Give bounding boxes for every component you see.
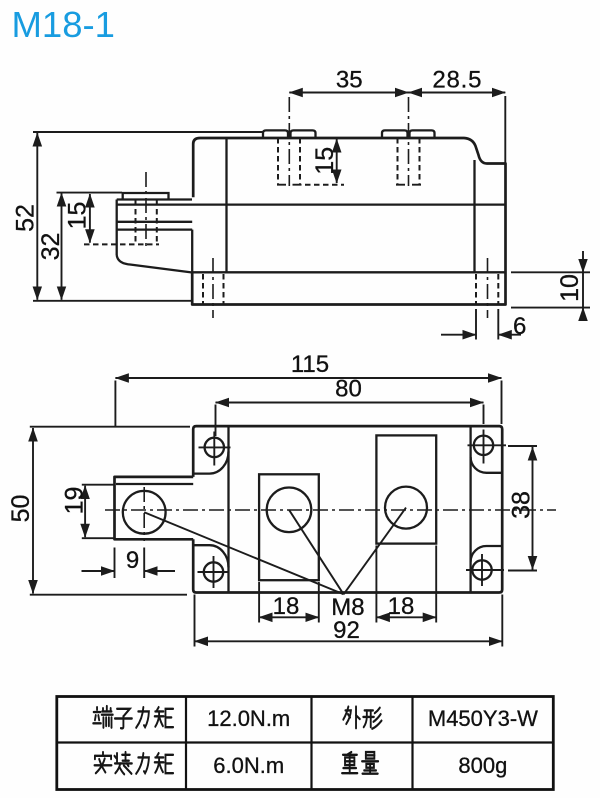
svg-text:800g: 800g: [458, 753, 507, 778]
svg-text:19: 19: [61, 487, 89, 515]
svg-text:10: 10: [556, 274, 584, 302]
svg-text:6.0N.m: 6.0N.m: [213, 753, 284, 778]
svg-text:M450Y3-W: M450Y3-W: [428, 706, 538, 731]
svg-text:28.5: 28.5: [432, 67, 482, 94]
svg-text:52: 52: [12, 204, 40, 232]
svg-text:92: 92: [333, 617, 360, 644]
svg-text:18: 18: [388, 593, 415, 620]
svg-text:15: 15: [311, 147, 339, 175]
svg-text:38: 38: [508, 491, 536, 519]
svg-text:80: 80: [335, 376, 362, 403]
svg-text:18: 18: [273, 593, 300, 620]
svg-text:50: 50: [7, 495, 35, 523]
svg-text:M18-1: M18-1: [12, 4, 115, 45]
svg-text:32: 32: [37, 233, 65, 261]
svg-text:6: 6: [513, 313, 526, 340]
svg-text:35: 35: [336, 67, 363, 94]
svg-text:15: 15: [64, 202, 92, 230]
svg-text:12.0N.m: 12.0N.m: [207, 706, 290, 731]
svg-text:9: 9: [126, 547, 139, 574]
svg-text:115: 115: [291, 351, 329, 378]
